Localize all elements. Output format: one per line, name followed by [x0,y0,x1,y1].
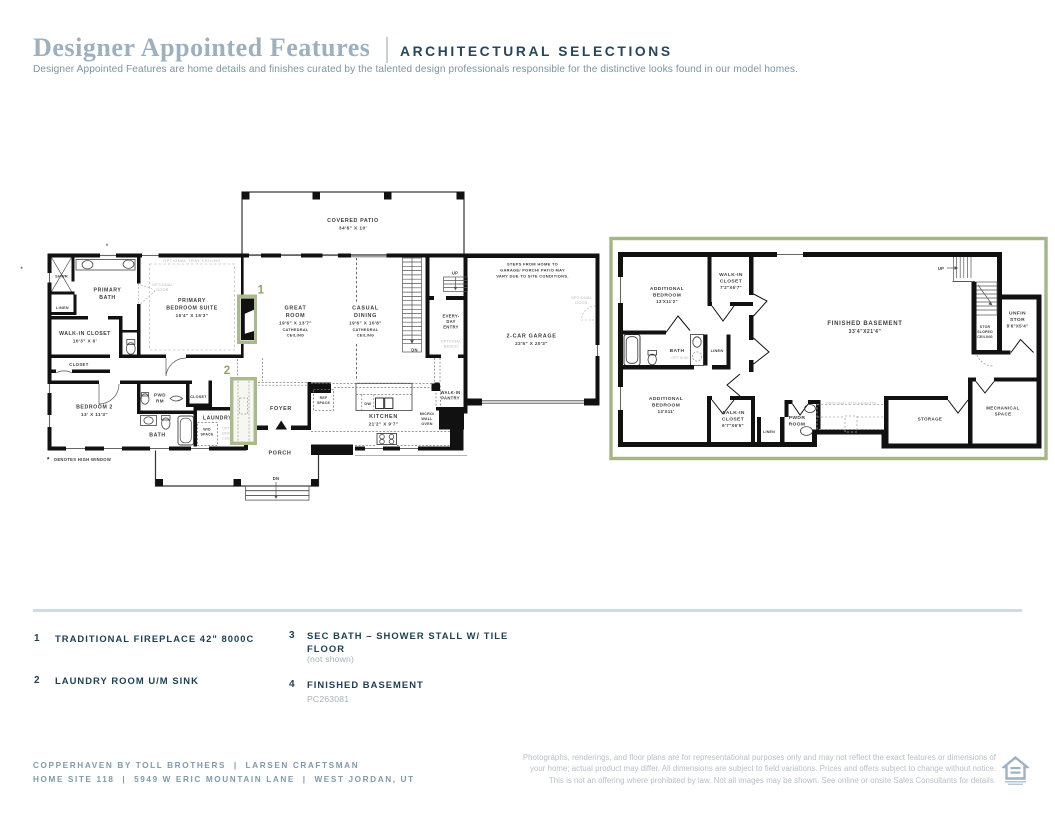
svg-text:STOR: STOR [980,325,991,329]
svg-text:13'X11': 13'X11' [658,409,675,414]
svg-text:DOOR: DOOR [575,301,587,305]
svg-text:CLOSET: CLOSET [190,395,207,399]
svg-text:PRIMARY: PRIMARY [178,298,206,304]
svg-text:10'3" X 6': 10'3" X 6' [73,339,97,344]
svg-text:FINISHED BASEMENT: FINISHED BASEMENT [827,321,902,327]
svg-text:LINEN: LINEN [56,306,69,310]
svg-text:OPTIONAL TRAY CEILING: OPTIONAL TRAY CEILING [163,258,221,263]
svg-text:ENTRY: ENTRY [443,325,459,330]
svg-text:8'6"X5'4": 8'6"X5'4" [1007,324,1029,329]
svg-text:CEILING: CEILING [287,333,305,337]
svg-text:WALK-IN: WALK-IN [719,272,743,278]
svg-text:22'5" X 20'3": 22'5" X 20'3" [515,341,548,346]
svg-text:6'7"X6'5": 6'7"X6'5" [722,423,744,428]
svg-text:BATH: BATH [670,348,685,354]
svg-text:EVERY-: EVERY- [442,314,459,319]
svg-text:LAUNDRY: LAUNDRY [203,416,232,422]
svg-text:OPT: OPT [222,427,230,431]
svg-text:MECHANICAL: MECHANICAL [986,406,1020,411]
svg-text:CATHEDRAL: CATHEDRAL [352,328,378,332]
svg-text:RM: RM [156,399,164,404]
svg-text:7'2"X6'7": 7'2"X6'7" [720,285,742,290]
svg-text:*: * [20,267,23,273]
svg-text:ROOM: ROOM [789,422,806,428]
svg-text:MICRO/: MICRO/ [420,412,435,416]
svg-text:LINEN: LINEN [763,430,775,434]
svg-text:GARAGE/ PORCH/ PATIO MAY: GARAGE/ PORCH/ PATIO MAY [500,268,565,273]
svg-text:21'2" X 9'7": 21'2" X 9'7" [369,421,399,426]
svg-text:SINK: SINK [222,432,231,436]
svg-text:BEDROOM: BEDROOM [653,293,681,299]
svg-text:2: 2 [224,365,230,377]
svg-text:BENCH: BENCH [444,345,458,349]
svg-text:CEILING: CEILING [977,335,993,339]
svg-text:19'6" X 13'7": 19'6" X 13'7" [279,320,312,325]
svg-text:WALK-IN CLOSET: WALK-IN CLOSET [59,331,111,337]
svg-text:OPTIONAL: OPTIONAL [152,283,173,287]
svg-text:*: * [47,458,50,464]
svg-text:DN: DN [273,476,279,481]
svg-text:*: * [106,244,109,250]
svg-text:CLOSET: CLOSET [69,362,88,367]
svg-text:STORAGE: STORAGE [918,417,942,422]
svg-text:2-CAR GARAGE: 2-CAR GARAGE [506,334,556,340]
svg-text:PORCH: PORCH [269,451,292,457]
svg-text:BATH: BATH [99,295,115,301]
svg-text:OPT SINK: OPT SINK [671,356,689,360]
svg-text:UNFIN: UNFIN [1009,311,1026,317]
svg-text:CLOSET: CLOSET [722,417,744,423]
svg-text:SPACE: SPACE [995,412,1012,417]
svg-text:STEPS FROM HOME TO: STEPS FROM HOME TO [507,262,558,267]
svg-text:W/D: W/D [203,428,211,432]
svg-text:DW: DW [364,402,371,406]
svg-text:13' X 11'3": 13' X 11'3" [81,412,108,417]
svg-text:OPTIONAL KITCHENETTE: OPTIONAL KITCHENETTE [826,402,877,406]
svg-text:UP: UP [938,266,944,271]
svg-text:GREAT: GREAT [285,306,307,312]
svg-text:BEDROOM SUITE: BEDROOM SUITE [166,306,218,312]
svg-text:19'6" X 10'8": 19'6" X 10'8" [349,320,382,325]
svg-text:SPACE: SPACE [200,433,214,437]
svg-text:CATHEDRAL: CATHEDRAL [282,328,308,332]
svg-text:DAY: DAY [446,319,455,324]
svg-text:OVEN: OVEN [421,422,432,426]
svg-text:LINEN: LINEN [711,348,724,353]
svg-text:BATH: BATH [149,433,165,439]
svg-text:DINING: DINING [354,313,377,319]
svg-text:PWD: PWD [154,393,166,398]
svg-text:OPTIONAL: OPTIONAL [571,296,592,300]
svg-text:SPACE: SPACE [317,401,331,405]
svg-text:VARY DUE TO SITE CONDITIONS.: VARY DUE TO SITE CONDITIONS. [496,274,568,279]
svg-text:WALL: WALL [421,417,433,421]
svg-text:REF: REF [320,396,328,400]
svg-text:DOOR: DOOR [156,288,168,292]
svg-text:ADDITIONAL: ADDITIONAL [649,396,683,402]
svg-text:15'4" X 15'3": 15'4" X 15'3" [176,313,209,318]
svg-text:CLOSET: CLOSET [720,279,742,285]
svg-text:SLOPED: SLOPED [977,330,993,334]
svg-text:DN: DN [411,348,417,353]
svg-text:SHWR: SHWR [55,275,68,279]
svg-text:DENOTES HIGH WINDOW: DENOTES HIGH WINDOW [54,457,111,462]
svg-text:CAB: CAB [222,437,230,441]
svg-text:PWDR: PWDR [789,415,806,421]
svg-text:UP: UP [452,271,458,276]
svg-text:PRIMARY: PRIMARY [94,288,122,294]
svg-text:33'4"X21'4": 33'4"X21'4" [849,329,882,335]
svg-text:ADDITIONAL: ADDITIONAL [650,286,684,292]
svg-text:34'6" X 10': 34'6" X 10' [339,226,367,232]
svg-text:COVERED PATIO: COVERED PATIO [327,218,379,224]
svg-text:FOYER: FOYER [270,406,292,412]
svg-text:13'X11'2": 13'X11'2" [656,299,678,304]
svg-text:STOR: STOR [1010,317,1025,323]
svg-text:WALK-IN: WALK-IN [721,410,745,416]
svg-text:WALK-IN: WALK-IN [440,390,460,395]
svg-text:PANTRY: PANTRY [441,396,460,401]
svg-text:1: 1 [258,285,265,297]
svg-text:CASUAL: CASUAL [352,306,379,312]
svg-text:BEDROOM 2: BEDROOM 2 [76,405,113,411]
svg-text:BEDROOM: BEDROOM [652,403,680,409]
svg-text:OPTIONAL: OPTIONAL [440,340,461,344]
svg-text:KITCHEN: KITCHEN [369,414,398,420]
svg-text:CEILING: CEILING [357,333,375,337]
svg-text:ROOM: ROOM [286,313,306,319]
